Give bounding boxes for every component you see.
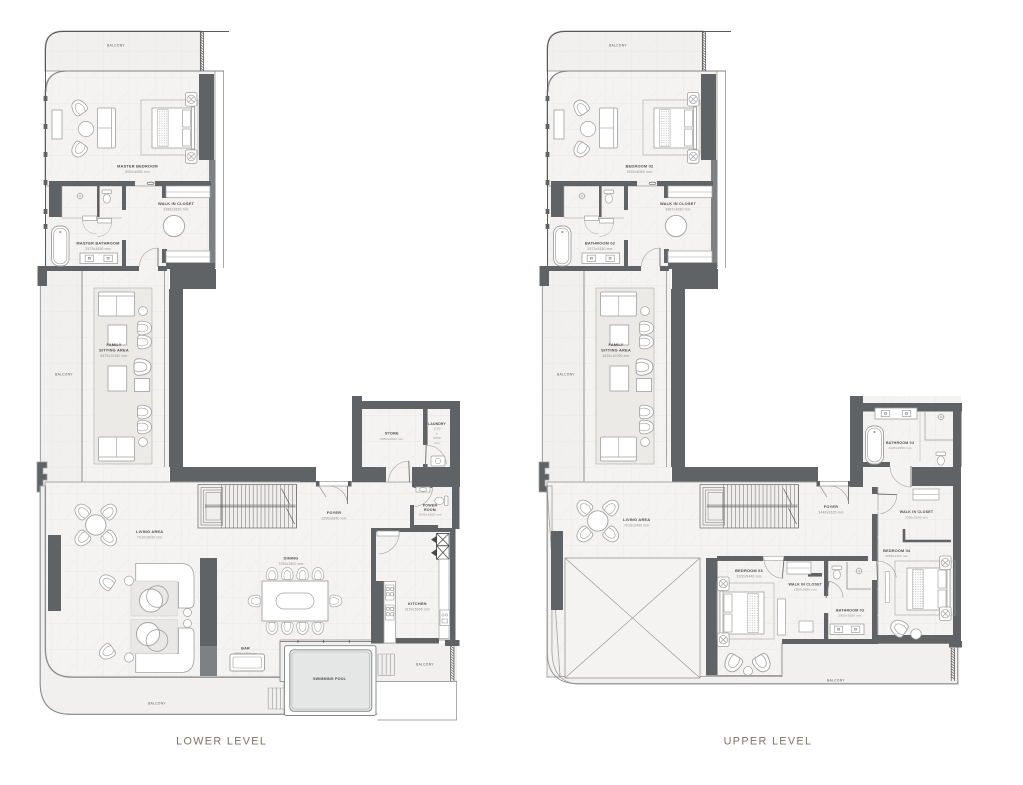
svg-text:FAMILY: FAMILY xyxy=(608,342,623,347)
svg-text:STORE: STORE xyxy=(385,432,399,436)
svg-text:2573x3830 mm: 2573x3830 mm xyxy=(85,247,110,251)
svg-text:FOYER: FOYER xyxy=(327,510,341,515)
svg-text:2200x6840 mm: 2200x6840 mm xyxy=(321,516,346,520)
svg-text:3150x5095 mm: 3150x5095 mm xyxy=(405,608,430,612)
svg-text:WALK IN CLOSET: WALK IN CLOSET xyxy=(660,201,697,206)
svg-text:BATHROOM 03: BATHROOM 03 xyxy=(836,609,864,613)
svg-text:BEDROOM 03: BEDROOM 03 xyxy=(735,568,763,573)
svg-text:BATHROOM 04: BATHROOM 04 xyxy=(886,441,914,445)
svg-text:BALCONY: BALCONY xyxy=(148,702,166,706)
svg-text:LIVING AREA: LIVING AREA xyxy=(623,517,650,522)
svg-text:BEDROOM 02: BEDROOM 02 xyxy=(626,164,654,169)
svg-text:7010x9030 mm: 7010x9030 mm xyxy=(137,536,162,540)
svg-text:3825x10050 mm: 3825x10050 mm xyxy=(602,354,629,358)
svg-text:FAMILY: FAMILY xyxy=(106,342,121,347)
svg-text:2300x2640 mm: 2300x2640 mm xyxy=(905,516,928,520)
svg-text:3050x4450 mm: 3050x4450 mm xyxy=(885,554,908,558)
svg-text:2650: 2650 xyxy=(433,436,441,440)
svg-text:BAR: BAR xyxy=(241,647,250,651)
svg-text:7250x2800 mm: 7250x2800 mm xyxy=(278,562,303,566)
svg-text:mm: mm xyxy=(434,441,440,445)
svg-text:2850x2930 mm: 2850x2930 mm xyxy=(380,437,403,441)
svg-text:BALCONY: BALCONY xyxy=(827,679,845,683)
svg-text:ROOM: ROOM xyxy=(424,508,436,512)
svg-text:3200x5440 mm: 3200x5440 mm xyxy=(736,575,761,579)
svg-text:1120: 1120 xyxy=(433,427,440,431)
svg-text:3440x9525 mm: 3440x9525 mm xyxy=(818,510,843,514)
svg-text:UPPER LEVEL: UPPER LEVEL xyxy=(724,736,813,748)
svg-text:7010x3440 mm: 7010x3440 mm xyxy=(624,524,649,528)
svg-text:1800x3650 mm: 1800x3650 mm xyxy=(794,588,817,592)
svg-text:1600x1800 mm: 1600x1800 mm xyxy=(418,513,441,517)
svg-text:BALCONY: BALCONY xyxy=(416,662,434,666)
svg-text:WALK IN CLOSET: WALK IN CLOSET xyxy=(900,510,934,514)
svg-text:DINING: DINING xyxy=(284,556,299,561)
svg-text:SWIMMING POOL: SWIMMING POOL xyxy=(313,677,347,681)
svg-text:KITCHEN: KITCHEN xyxy=(408,601,427,606)
svg-text:BATHROOM 02: BATHROOM 02 xyxy=(585,241,616,246)
svg-text:2850x3650 mm: 2850x3650 mm xyxy=(838,614,861,618)
svg-text:MASTER BATHROOM: MASTER BATHROOM xyxy=(76,241,119,246)
svg-text:2573x3830 mm: 2573x3830 mm xyxy=(587,247,612,251)
svg-text:LOWER LEVEL: LOWER LEVEL xyxy=(176,736,267,748)
svg-text:5875x10350 mm: 5875x10350 mm xyxy=(100,354,127,358)
svg-text:BEDROOM 04: BEDROOM 04 xyxy=(883,549,911,553)
svg-text:5000x6360 mm: 5000x6360 mm xyxy=(627,170,652,174)
svg-text:3986x3830 mm: 3986x3830 mm xyxy=(163,207,188,211)
svg-text:5000x6050 mm: 5000x6050 mm xyxy=(125,170,150,174)
svg-text:LAUNDRY: LAUNDRY xyxy=(428,422,446,426)
svg-text:x: x xyxy=(436,431,438,435)
svg-text:FOYER: FOYER xyxy=(824,504,838,509)
svg-text:LIVING AREA: LIVING AREA xyxy=(136,529,163,534)
svg-text:4125x2650 mm: 4125x2650 mm xyxy=(888,446,911,450)
svg-text:SITTING AREA: SITTING AREA xyxy=(99,348,129,353)
svg-text:MASTER BEDROOM: MASTER BEDROOM xyxy=(117,164,158,169)
svg-text:POWER: POWER xyxy=(423,504,438,508)
svg-text:3887x3830 mm: 3887x3830 mm xyxy=(665,207,690,211)
svg-text:SITTING AREA: SITTING AREA xyxy=(601,348,631,353)
svg-text:WALK IN CLOSET: WALK IN CLOSET xyxy=(789,583,823,587)
svg-text:WALK IN CLOSET: WALK IN CLOSET xyxy=(158,201,195,206)
svg-text:2955x1750 mm: 2955x1750 mm xyxy=(234,652,257,656)
